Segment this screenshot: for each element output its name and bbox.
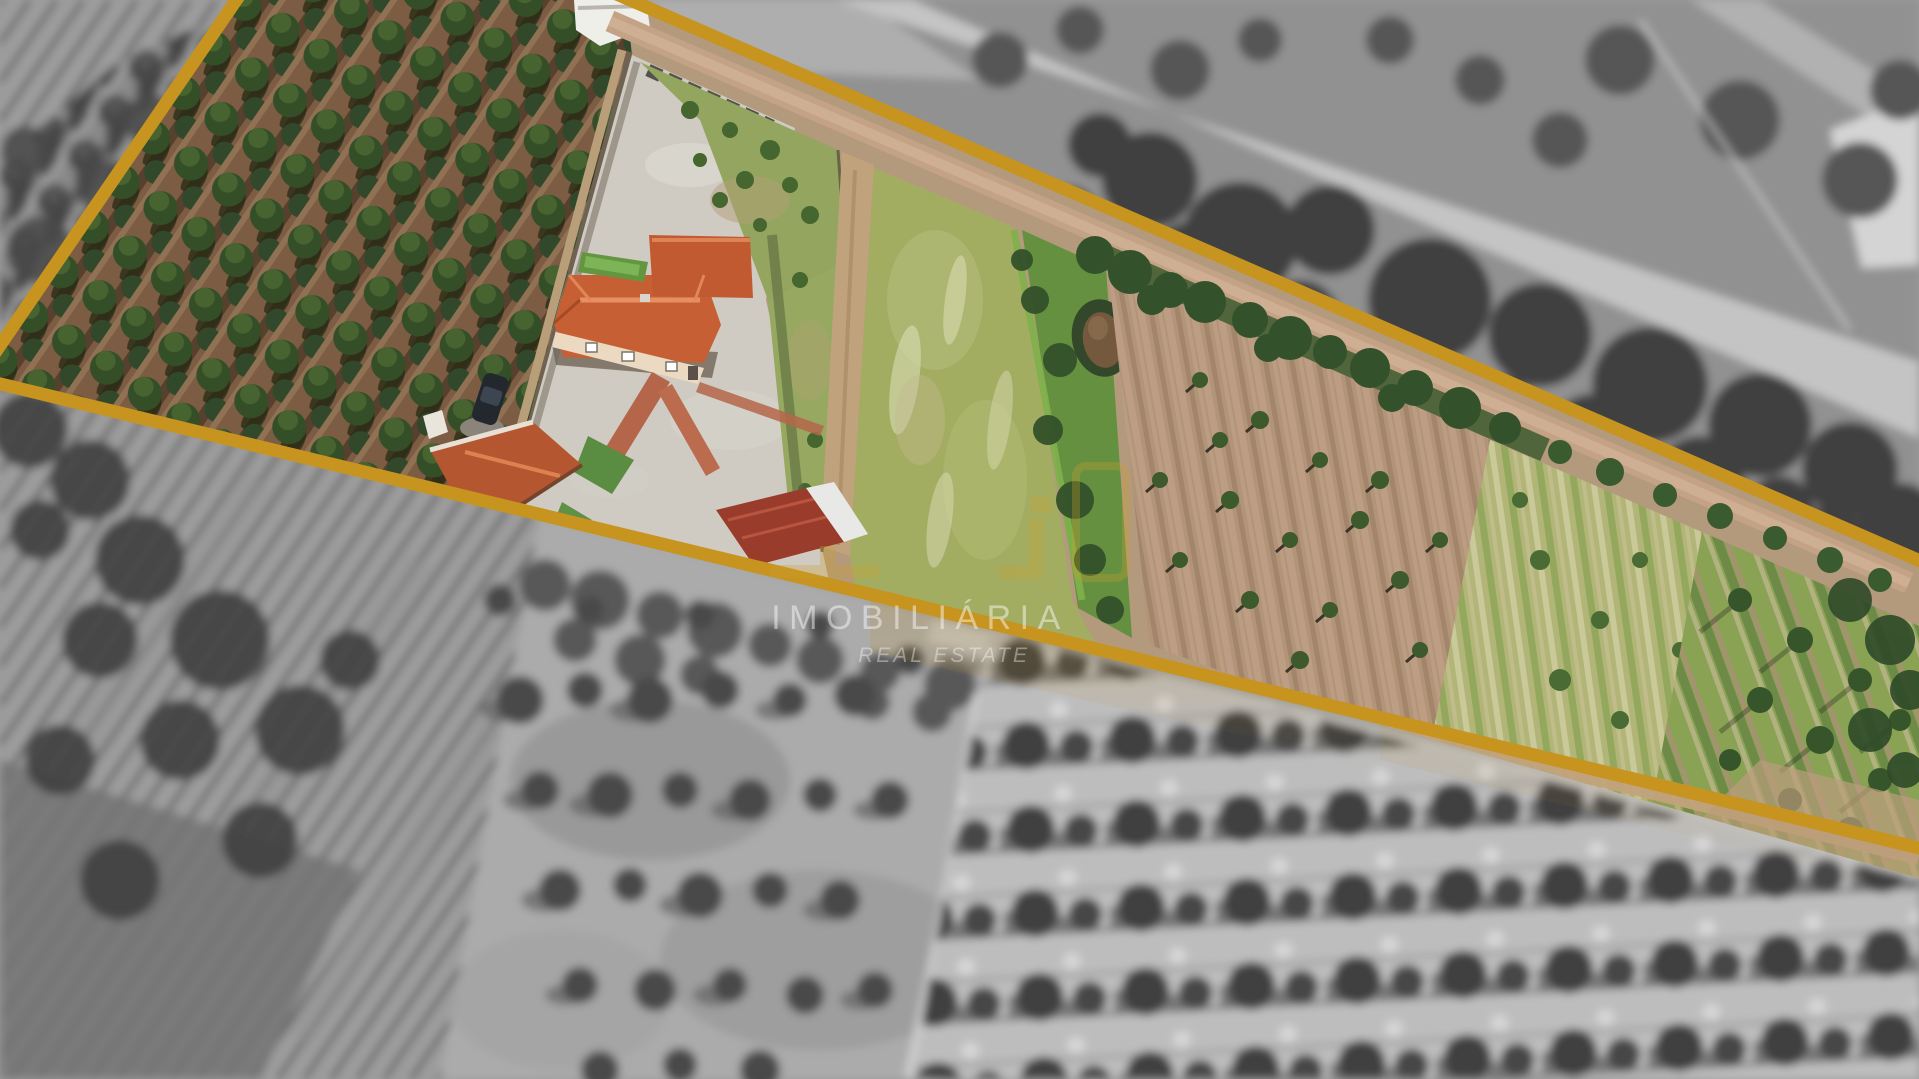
svg-text:REAL ESTATE: REAL ESTATE [858,644,1030,667]
svg-text:IMOBILIÁRIA: IMOBILIÁRIA [771,599,1069,637]
